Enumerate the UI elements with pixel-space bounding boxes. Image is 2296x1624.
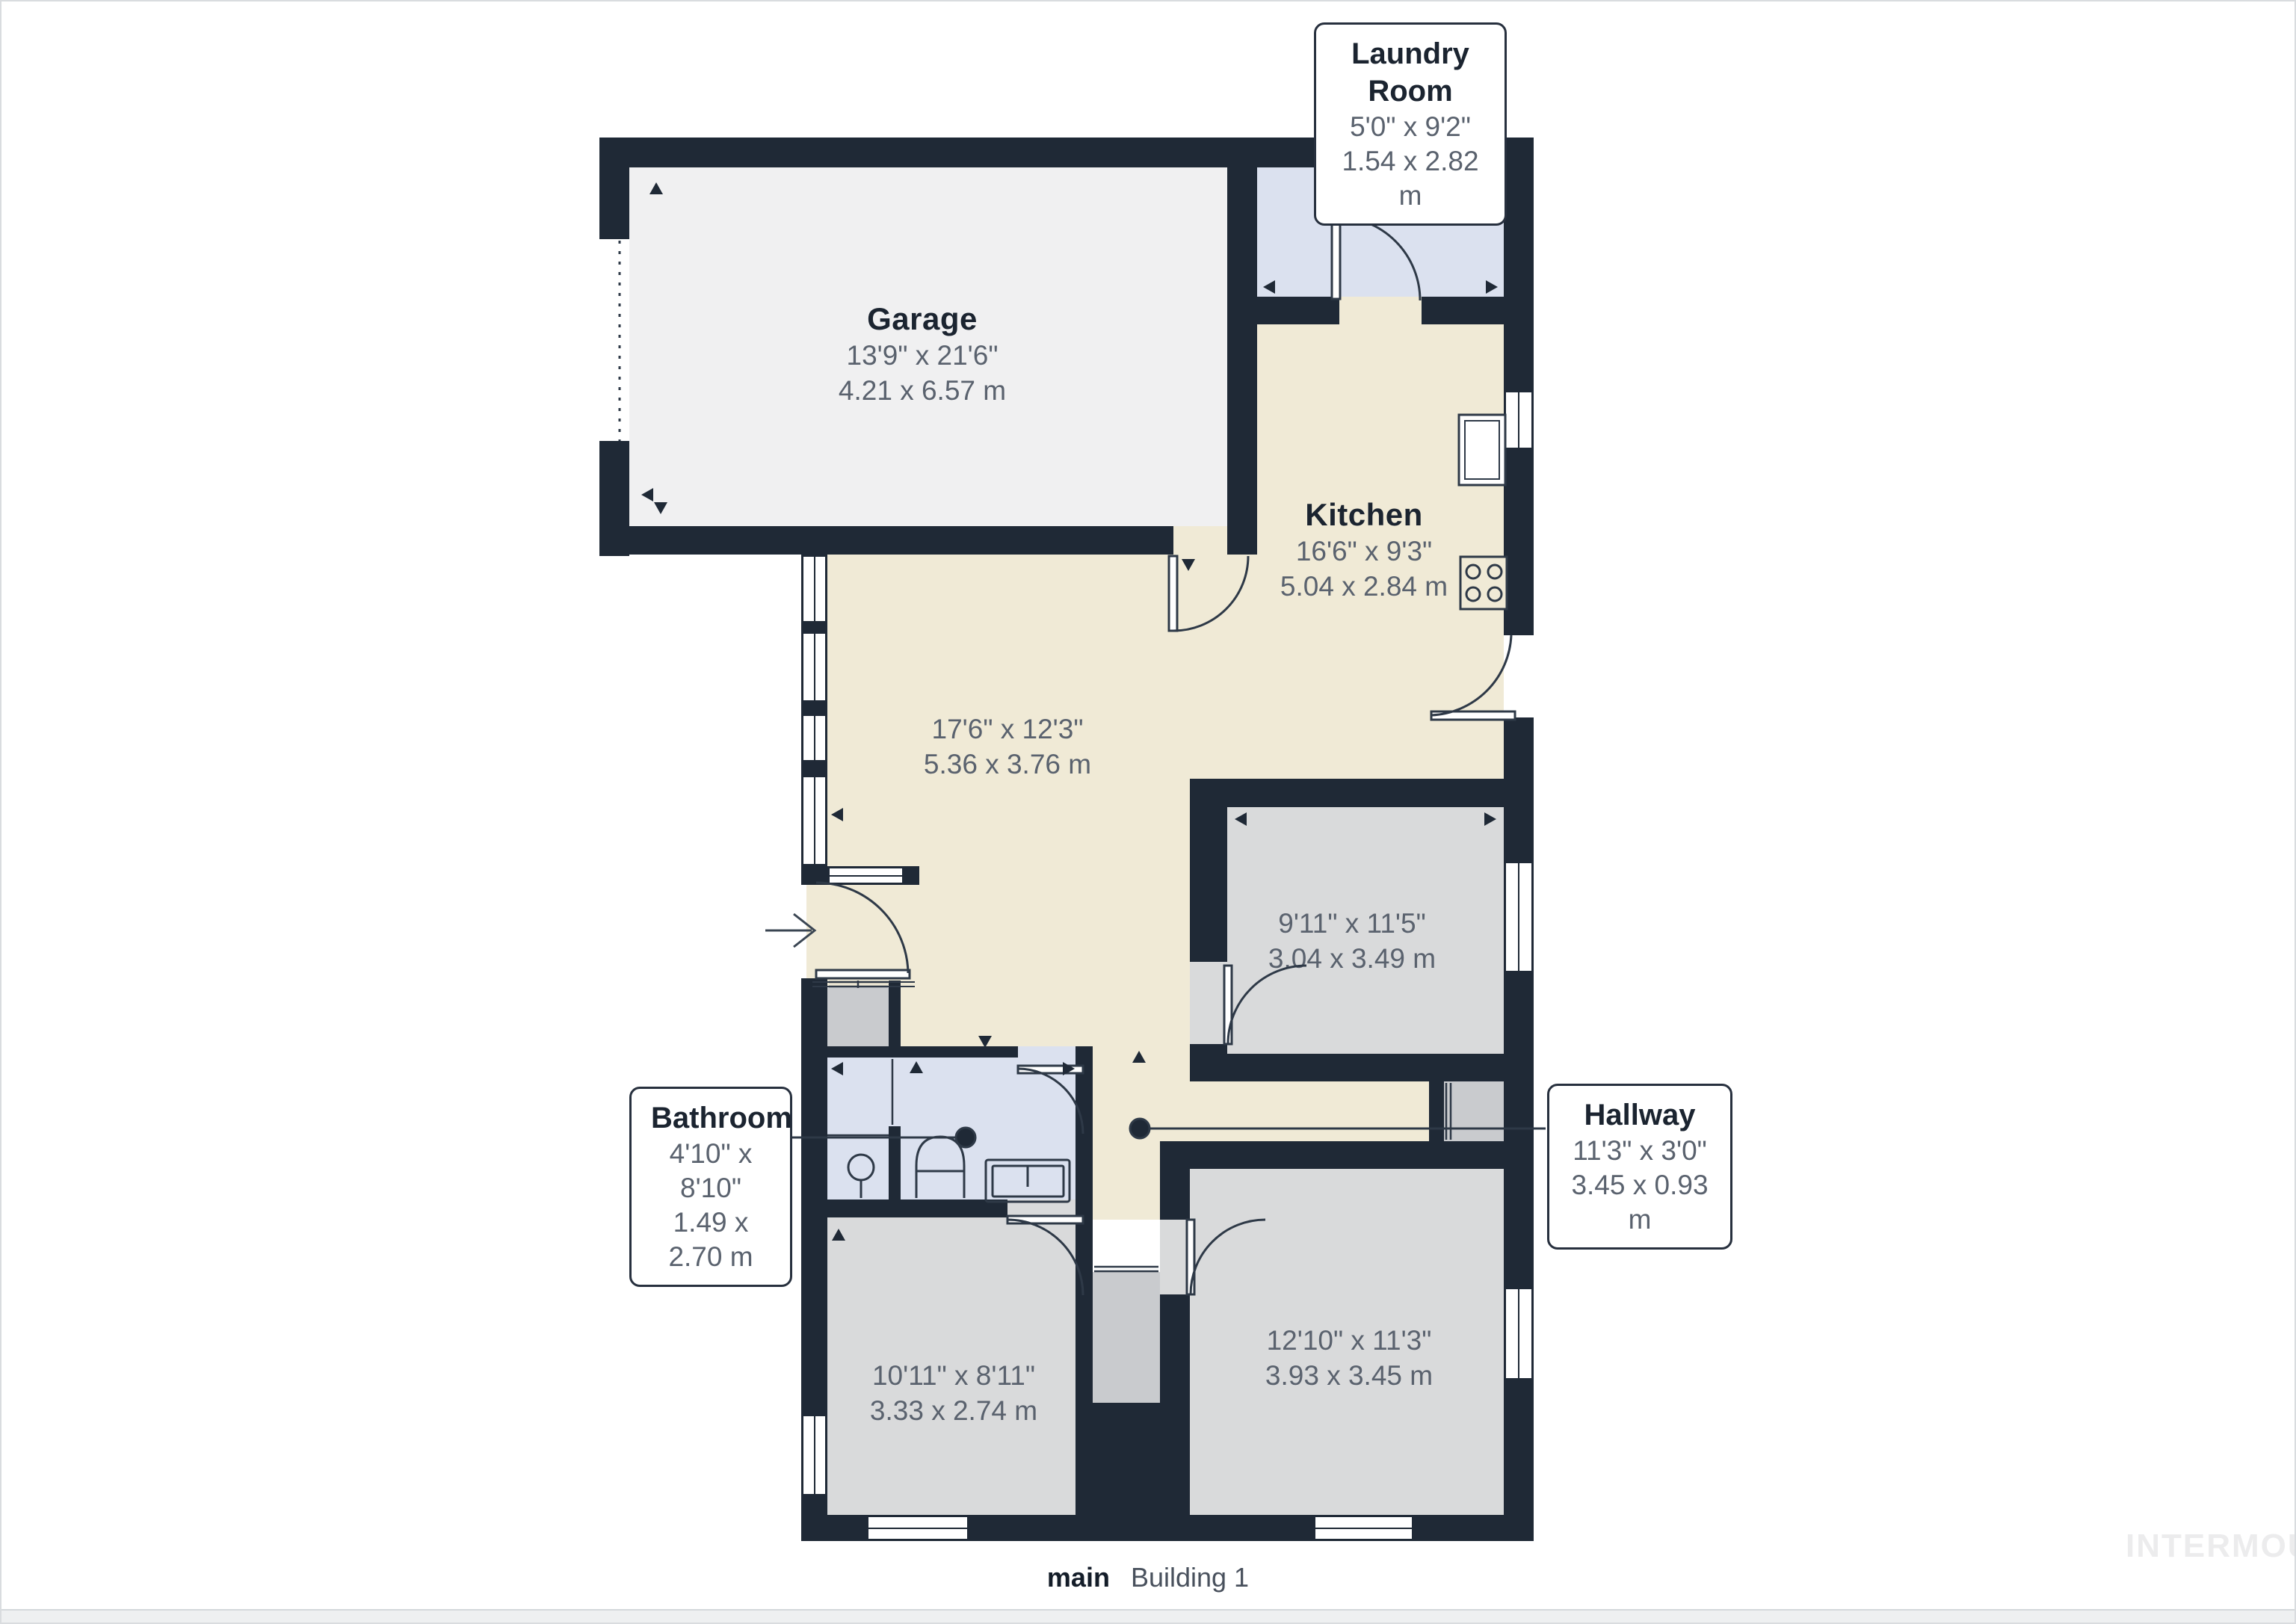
corner-markers	[641, 182, 1498, 1241]
hall-closet-sliders	[1446, 1083, 1451, 1140]
callout-hallway: Hallway 11'3" x 3'0" 3.45 x 0.93 m	[1547, 1084, 1732, 1250]
front-door-arc	[816, 883, 908, 973]
plan-overlay	[1, 1, 2296, 1624]
stove-icon	[1460, 557, 1507, 609]
garage-entry-door-arc	[1173, 556, 1248, 631]
callout-bathroom: Bathroom 4'10" x 8'10" 1.49 x 2.70 m	[629, 1087, 792, 1287]
callout-bathroom-name: Bathroom	[651, 1099, 771, 1137]
floorplan-canvas: Laundry Room 5'0" x 9'2" 1.54 x 2.82 m B…	[0, 0, 2296, 1624]
bathroom-leader-dot	[956, 1128, 975, 1147]
bedroom-bl-door-arc	[1007, 1220, 1083, 1295]
callout-laundry-dim-ft: 5'0" x 9'2"	[1336, 110, 1485, 144]
callout-laundry-name: Laundry Room	[1336, 35, 1485, 110]
laundry-door-arc	[1336, 217, 1420, 300]
mid-closet-sliders	[1094, 1267, 1158, 1271]
callout-bathroom-dim-m: 1.49 x 2.70 m	[651, 1205, 771, 1274]
garage-entry-door-leaf	[1169, 556, 1177, 631]
callout-hallway-dim-ft: 11'3" x 3'0"	[1569, 1134, 1711, 1168]
callout-laundry-room: Laundry Room 5'0" x 9'2" 1.54 x 2.82 m	[1314, 22, 1507, 226]
kitchen-back-door-arc	[1431, 635, 1511, 715]
laundry-door-leaf	[1332, 214, 1340, 299]
sink-icon	[848, 1155, 874, 1180]
hallway-leader-dot	[1130, 1119, 1149, 1138]
callout-hallway-name: Hallway	[1569, 1096, 1711, 1134]
entry-closet-sliders	[829, 981, 888, 988]
bedroom-right-door-arc	[1228, 966, 1306, 1044]
bathroom-door-arc	[1018, 1069, 1083, 1134]
bedroom-br-door-arc	[1191, 1220, 1265, 1294]
callout-laundry-dim-m: 1.54 x 2.82 m	[1336, 144, 1485, 213]
entry-arrow-icon	[765, 914, 815, 947]
callout-hallway-dim-m: 3.45 x 0.93 m	[1569, 1168, 1711, 1237]
front-door-leaf	[816, 970, 910, 978]
toilet-icon	[916, 1137, 964, 1198]
callout-bathroom-dim-ft: 4'10" x 8'10"	[651, 1137, 771, 1205]
fridge-icon	[1459, 415, 1505, 485]
